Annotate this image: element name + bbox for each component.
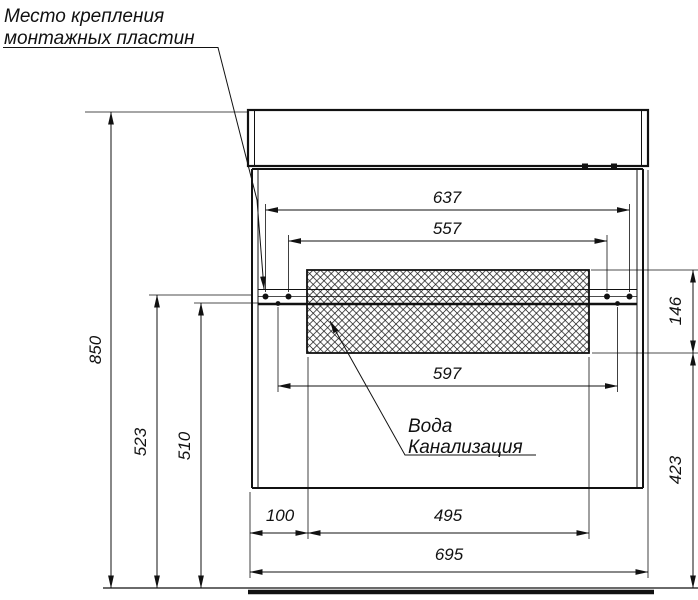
floor-line bbox=[103, 588, 698, 592]
countertop-clip bbox=[611, 164, 617, 169]
technical-drawing-page: 637 557 597 100 495 695 850 523 bbox=[0, 0, 698, 600]
dim-label-100: 100 bbox=[266, 506, 295, 525]
note-utilities-line1: Вода bbox=[408, 416, 452, 437]
dim-label-423: 423 bbox=[666, 455, 685, 484]
dim-label-850: 850 bbox=[86, 335, 105, 364]
dim-label-637: 637 bbox=[433, 188, 462, 207]
service-zone-hatch bbox=[307, 270, 589, 353]
note-mounting-plates-line2: монтажных пластин bbox=[4, 28, 195, 49]
mounting-hole bbox=[286, 294, 292, 300]
mounting-hole bbox=[627, 294, 633, 300]
countertop bbox=[248, 110, 648, 168]
dim-label-695: 695 bbox=[435, 545, 464, 564]
dim-total-height: 850 bbox=[85, 112, 248, 588]
mounting-hole bbox=[276, 301, 281, 306]
countertop-clip bbox=[582, 164, 588, 169]
dim-label-146: 146 bbox=[666, 296, 685, 325]
dim-label-523: 523 bbox=[131, 427, 150, 456]
dim-label-597: 597 bbox=[433, 364, 462, 383]
cabinet-installation-diagram: 637 557 597 100 495 695 850 523 bbox=[0, 0, 698, 600]
mounting-hole bbox=[615, 301, 620, 306]
dim-left-inset: 100 bbox=[250, 357, 308, 578]
mounting-hole bbox=[604, 294, 610, 300]
dim-below-zone-height: 423 bbox=[666, 353, 693, 588]
dim-label-510: 510 bbox=[175, 431, 194, 460]
dim-rail-lower-height: 510 bbox=[175, 303, 259, 588]
dim-label-495: 495 bbox=[434, 506, 463, 525]
note-utilities-line2: Канализация bbox=[408, 437, 523, 458]
mounting-hole bbox=[263, 294, 269, 300]
leader-mounting-plates bbox=[3, 48, 264, 290]
dim-label-557: 557 bbox=[433, 219, 462, 238]
note-mounting-plates-line1: Место крепления bbox=[4, 6, 164, 27]
